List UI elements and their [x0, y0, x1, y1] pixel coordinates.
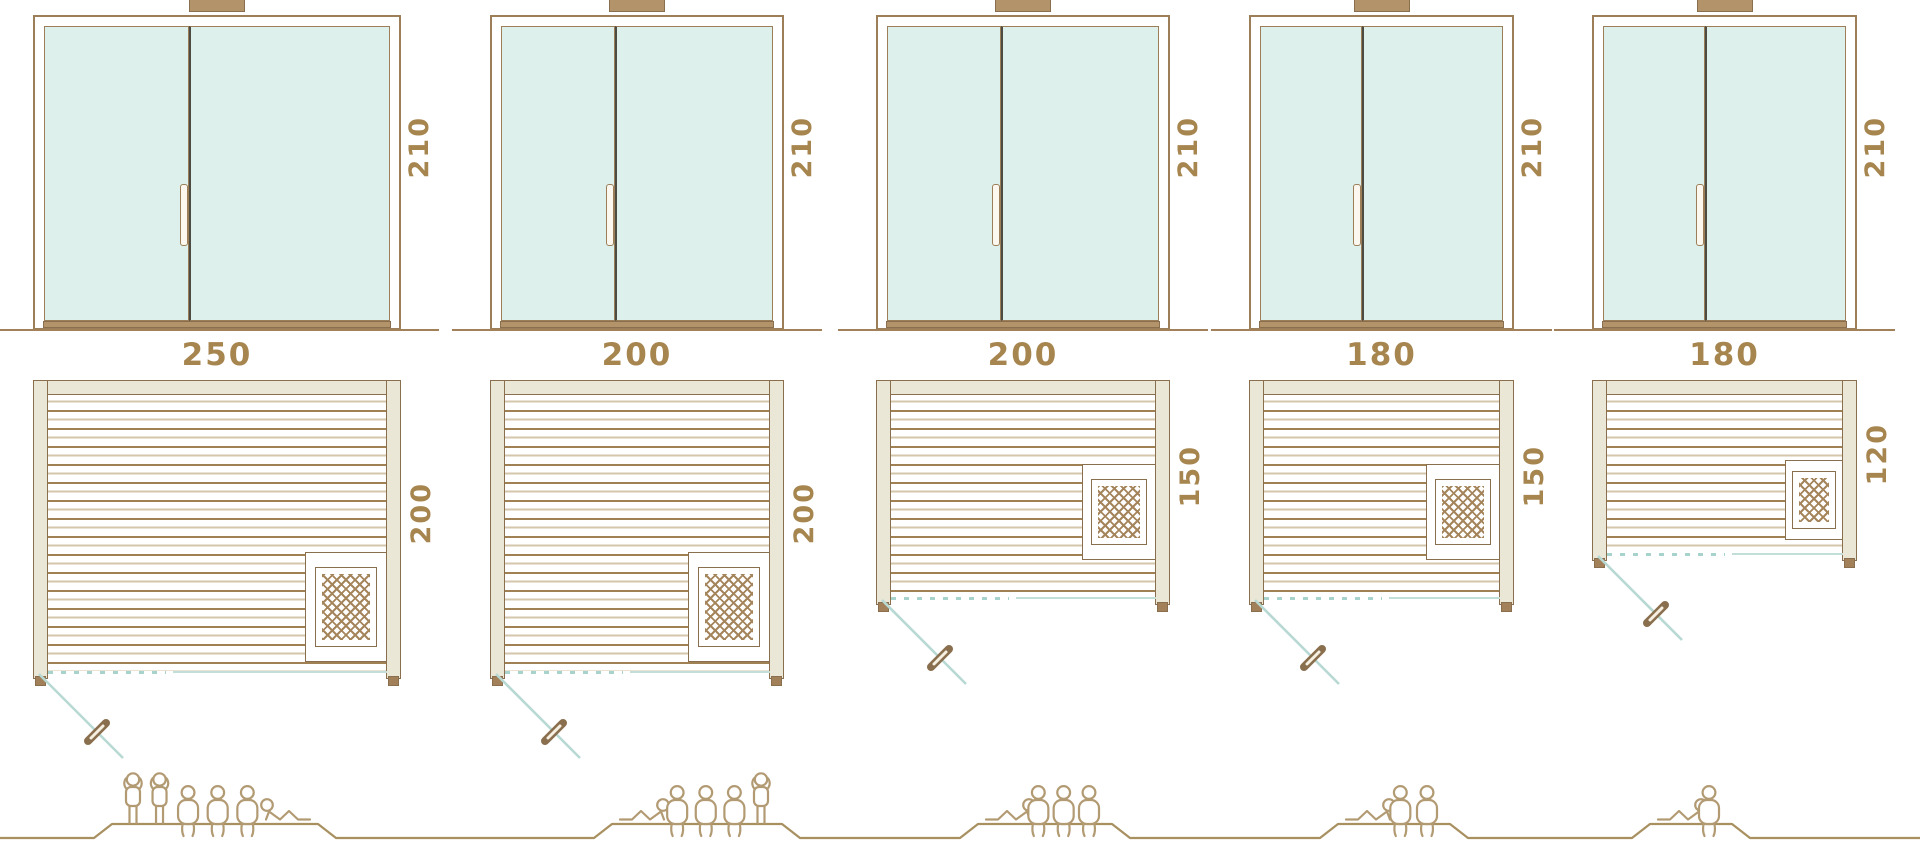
glass-panel-right [1705, 26, 1846, 321]
door-swing-icon [1253, 598, 1403, 748]
width-label: 250 [33, 337, 401, 373]
ground-line [452, 329, 822, 331]
ground-line [0, 329, 439, 331]
chimney-icon [609, 0, 665, 12]
heater-icon [315, 567, 377, 647]
plan-post-left [1249, 380, 1264, 605]
heater-icon [1435, 479, 1491, 545]
door-handle-icon [1696, 184, 1704, 246]
sauna-size-diagram: 210 250 200 [0, 0, 1920, 856]
plan-post-right [769, 380, 784, 679]
glass-panel-right [615, 26, 773, 321]
sauna-column-1: 210 250 200 [33, 0, 401, 856]
glass-panel-left [44, 26, 189, 321]
door-sill [500, 321, 774, 328]
heater-niche [1082, 464, 1156, 560]
plan-post-left [490, 380, 505, 679]
person-sitting-icon [208, 786, 228, 836]
glass-panel-right [1001, 26, 1159, 321]
person-sitting-icon [237, 786, 257, 836]
plan-post-left [33, 380, 48, 679]
person-sitting-icon [1054, 786, 1074, 836]
plan-wall-top [876, 380, 1170, 395]
wall-opening-line [1389, 597, 1500, 600]
height-label: 210 [787, 116, 818, 178]
glass-panel-left [887, 26, 1001, 321]
chimney-icon [1354, 0, 1410, 12]
person-sitting-icon [1079, 786, 1099, 836]
sauna-column-3: 210 200 150 [876, 0, 1170, 856]
width-label: 180 [1592, 337, 1857, 373]
heater-hatch [1799, 478, 1829, 522]
person-sitting-icon [667, 786, 687, 836]
person-standing-icon [151, 773, 168, 823]
depth-label: 150 [1175, 445, 1206, 507]
floor-plan [490, 380, 784, 674]
heater-niche [1785, 460, 1843, 540]
heater-icon [1792, 471, 1836, 529]
heater-hatch [322, 574, 370, 640]
heater-hatch [1442, 486, 1484, 538]
chimney-icon [1697, 0, 1753, 12]
heater-icon [698, 567, 760, 647]
height-label: 210 [1173, 116, 1204, 178]
glass-panel-right [1362, 26, 1503, 321]
door-sill [1602, 321, 1847, 328]
door-elevation [33, 15, 401, 330]
door-elevation [1249, 15, 1514, 330]
wall-opening-line [1732, 553, 1843, 556]
door-sill [43, 321, 391, 328]
heater-niche [688, 552, 770, 662]
person-sitting-icon [1028, 786, 1048, 836]
wall-opening-line [173, 671, 387, 674]
person-standing-icon [124, 773, 141, 823]
door-swing-icon [880, 598, 1030, 748]
width-label: 180 [1249, 337, 1514, 373]
door-elevation [1592, 15, 1857, 330]
door-handle-icon [992, 184, 1000, 246]
height-label: 210 [1860, 116, 1891, 178]
glass-panel-right [189, 26, 390, 321]
height-label: 210 [404, 116, 435, 178]
person-lying-head-left-icon [261, 799, 310, 819]
door-elevation [876, 15, 1170, 330]
plan-post-left [1592, 380, 1607, 561]
door-sill [1259, 321, 1504, 328]
door-glazing [1603, 26, 1846, 328]
heater-icon [1091, 479, 1147, 545]
ground-line [1554, 329, 1895, 331]
person-standing-icon [752, 773, 769, 823]
door-swing-icon [1596, 554, 1746, 704]
person-sitting-icon [178, 786, 198, 836]
depth-label: 150 [1519, 445, 1550, 507]
depth-label: 200 [406, 482, 437, 544]
door-handle-icon [180, 184, 188, 246]
plan-post-right [1499, 380, 1514, 605]
heater-hatch [1098, 486, 1140, 538]
bench-ground-line [0, 824, 1920, 838]
glass-panel-left [1260, 26, 1362, 321]
heater-niche [1426, 464, 1500, 560]
floor-plan [1592, 380, 1857, 556]
sauna-column-4: 210 180 150 [1249, 0, 1514, 856]
person-sitting-icon [1417, 786, 1437, 836]
plan-wall-top [490, 380, 784, 395]
wall-opening-line [1016, 597, 1156, 600]
plan-post-left [876, 380, 891, 605]
sauna-column-2: 210 200 200 [490, 0, 784, 856]
height-label: 210 [1517, 116, 1548, 178]
door-elevation [490, 15, 784, 330]
plan-post-right [386, 380, 401, 679]
chimney-icon [189, 0, 245, 12]
heater-hatch [705, 574, 753, 640]
person-sitting-icon [724, 786, 744, 836]
heater-niche [305, 552, 387, 662]
capacity-figures-strip [0, 760, 1920, 856]
person-sitting-icon [1699, 786, 1719, 836]
floor-plan [876, 380, 1170, 600]
floor-plan [1249, 380, 1514, 600]
person-sitting-icon [696, 786, 716, 836]
door-glazing [887, 26, 1159, 328]
glass-panel-left [1603, 26, 1705, 321]
plan-post-right [1842, 380, 1857, 561]
plan-wall-top [33, 380, 401, 395]
sauna-column-5: 210 180 120 [1592, 0, 1857, 856]
floor-plan [33, 380, 401, 674]
door-sill [886, 321, 1160, 328]
person-sitting-icon [1390, 786, 1410, 836]
chimney-icon [995, 0, 1051, 12]
person-lying-head-right-icon [1346, 799, 1395, 819]
wall-opening-line [630, 671, 770, 674]
width-label: 200 [876, 337, 1170, 373]
door-handle-icon [606, 184, 614, 246]
ground-line [1211, 329, 1552, 331]
ground-line [838, 329, 1208, 331]
door-handle-icon [1353, 184, 1361, 246]
depth-label: 200 [789, 482, 820, 544]
depth-label: 120 [1862, 423, 1893, 485]
width-label: 200 [490, 337, 784, 373]
glass-panel-left [501, 26, 615, 321]
person-lying-head-right-icon [620, 799, 669, 819]
door-glazing [1260, 26, 1503, 328]
door-glazing [44, 26, 390, 328]
plan-wall-top [1249, 380, 1514, 395]
door-glazing [501, 26, 773, 328]
plan-post-right [1155, 380, 1170, 605]
plan-wall-top [1592, 380, 1857, 395]
